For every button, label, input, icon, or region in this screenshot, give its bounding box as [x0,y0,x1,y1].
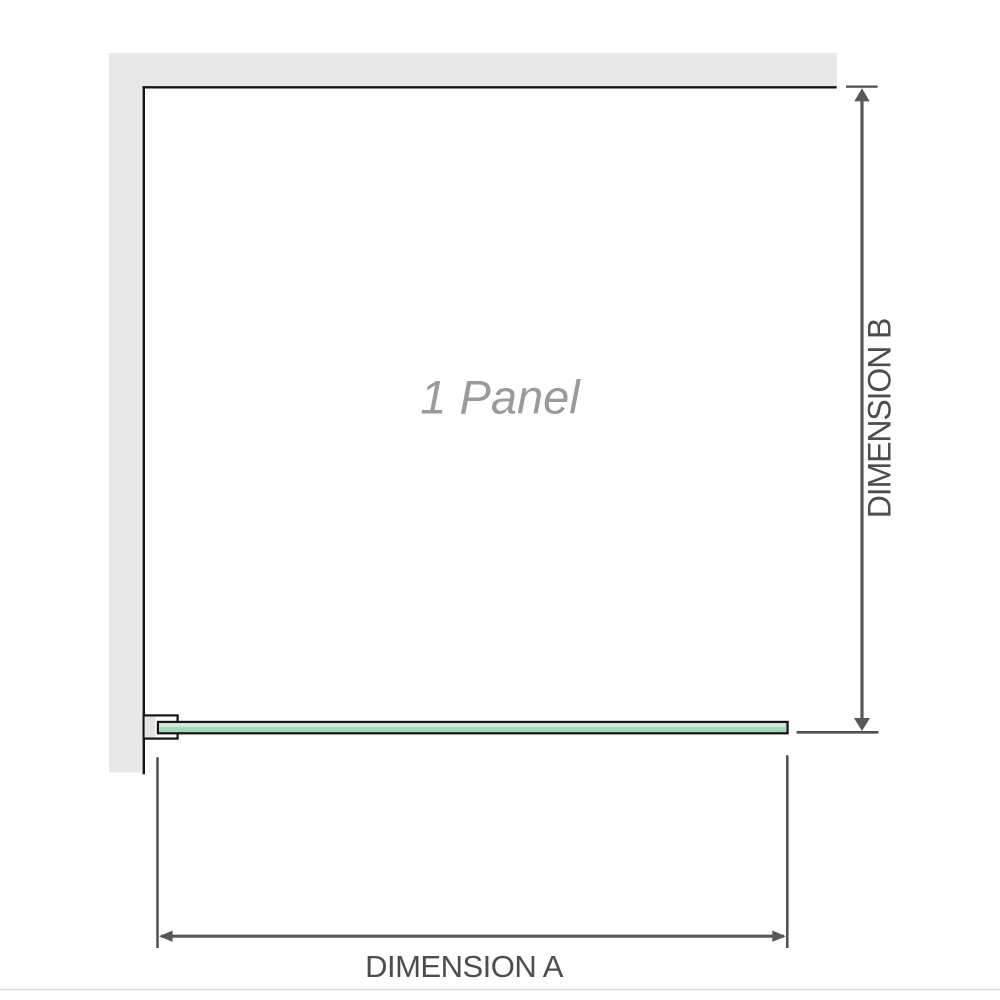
svg-text:1 Panel: 1 Panel [420,371,581,424]
svg-text:DIMENSION A: DIMENSION A [365,949,564,984]
svg-text:DIMENSION B: DIMENSION B [861,319,897,518]
